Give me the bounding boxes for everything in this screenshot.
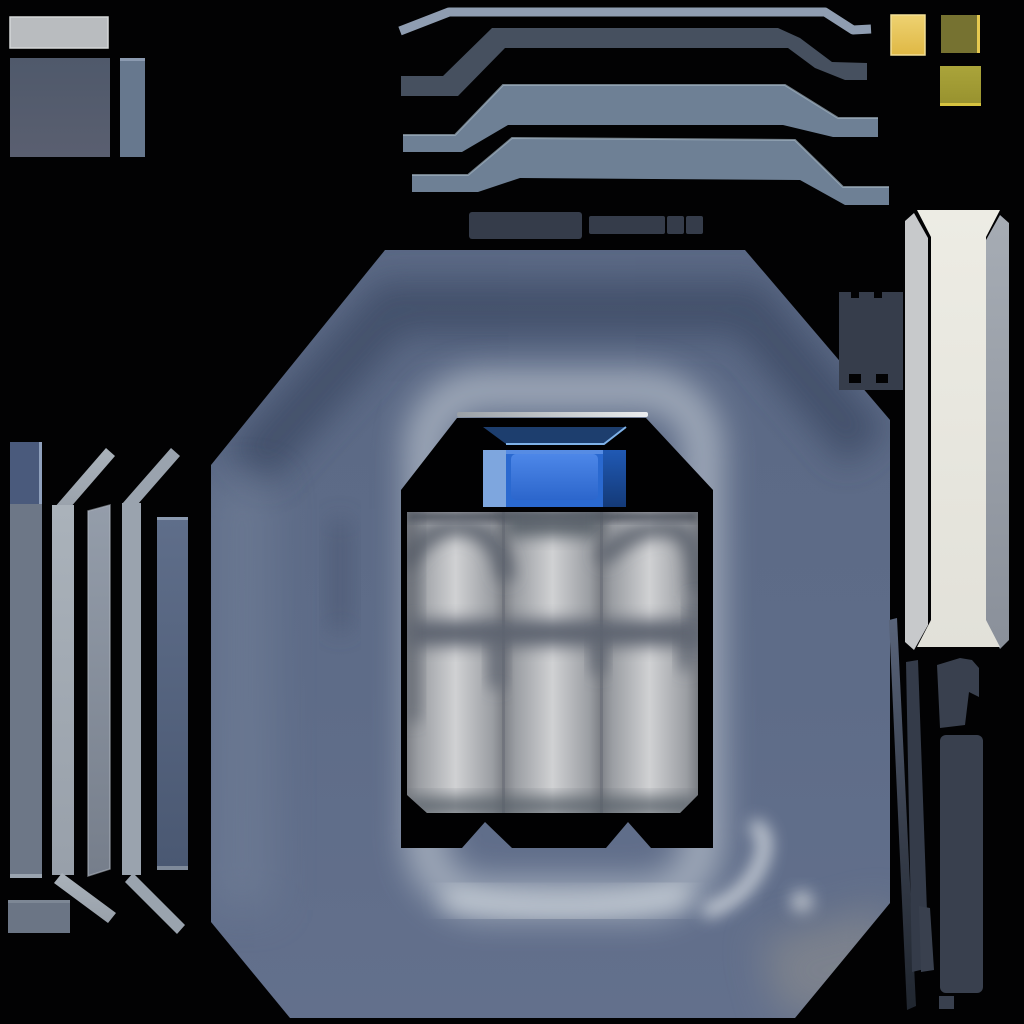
connector-block-1 <box>469 212 582 239</box>
yellow-cap-olive <box>941 15 980 53</box>
cylinder-1 <box>407 512 504 813</box>
cylinder-2 <box>504 512 601 813</box>
narrow-panel-bar <box>120 58 145 157</box>
edge-rail-bent-light <box>122 503 141 875</box>
mid-band-shadow <box>407 620 698 646</box>
edge-rail-blue-top-edge <box>157 517 188 520</box>
vent-block-body <box>839 292 903 390</box>
rail-foot <box>939 996 954 1009</box>
blue-power-cell <box>483 450 626 507</box>
edge-rail-gray-bottom-edge <box>10 874 42 878</box>
dark-cap-edge <box>940 103 981 106</box>
drip-1 <box>490 636 504 688</box>
vent-notch-top-2 <box>874 292 882 298</box>
cell-top-highlight <box>506 450 603 454</box>
edge-rail-gray-top-edge <box>39 442 42 504</box>
octagon-left-light <box>211 480 273 910</box>
drip-2 <box>592 636 605 674</box>
yellow-cap-bright <box>891 15 925 55</box>
cell-front-panel <box>511 454 598 500</box>
vent-notch-bottom-1 <box>849 374 861 383</box>
connector-block-3 <box>667 216 684 234</box>
dark-panel-square <box>10 58 110 157</box>
vent-block <box>839 292 903 390</box>
octagon-dark-streak <box>332 520 348 630</box>
silver-edge-line <box>457 412 648 417</box>
column-side-strip-right <box>986 215 1009 649</box>
yellow-cap-dark <box>940 66 981 106</box>
vent-notch-top-1 <box>851 292 859 298</box>
edge-rail-blue-bottom-edge <box>157 866 188 870</box>
cell-right-face <box>603 450 626 507</box>
drape-shadow-mid <box>506 512 601 536</box>
connector-block-2 <box>589 216 665 234</box>
edge-rail-blue <box>157 517 188 870</box>
connector-block-4 <box>686 216 703 234</box>
white-blob <box>791 891 813 913</box>
wide-rail-lower <box>940 735 983 993</box>
small-gray-block-edge <box>8 900 70 903</box>
edge-rail-gray-top <box>10 442 42 504</box>
drip-3 <box>680 634 693 670</box>
battery-cylinders <box>402 512 700 814</box>
cyl-bottom-shadow <box>407 798 698 814</box>
left-edge-shadow <box>407 512 419 722</box>
lid-face <box>483 427 626 444</box>
texture-atlas-canvas <box>0 0 1024 1024</box>
olive-cap-edge <box>977 15 980 53</box>
column-side-strip-left <box>905 213 928 650</box>
edge-rail-gray <box>10 442 42 878</box>
cell-left-face <box>483 450 506 507</box>
blue-cell-lid <box>483 427 626 444</box>
edge-rail-mid <box>88 505 110 876</box>
small-gray-block <box>8 900 70 933</box>
bar-top-edge <box>120 58 145 61</box>
edge-rail-bent-silver <box>52 505 74 875</box>
texture-atlas <box>0 0 1024 1024</box>
light-gray-plate <box>10 17 108 48</box>
vent-notch-bottom-2 <box>876 374 888 383</box>
ivory-column-assembly <box>905 210 1009 650</box>
